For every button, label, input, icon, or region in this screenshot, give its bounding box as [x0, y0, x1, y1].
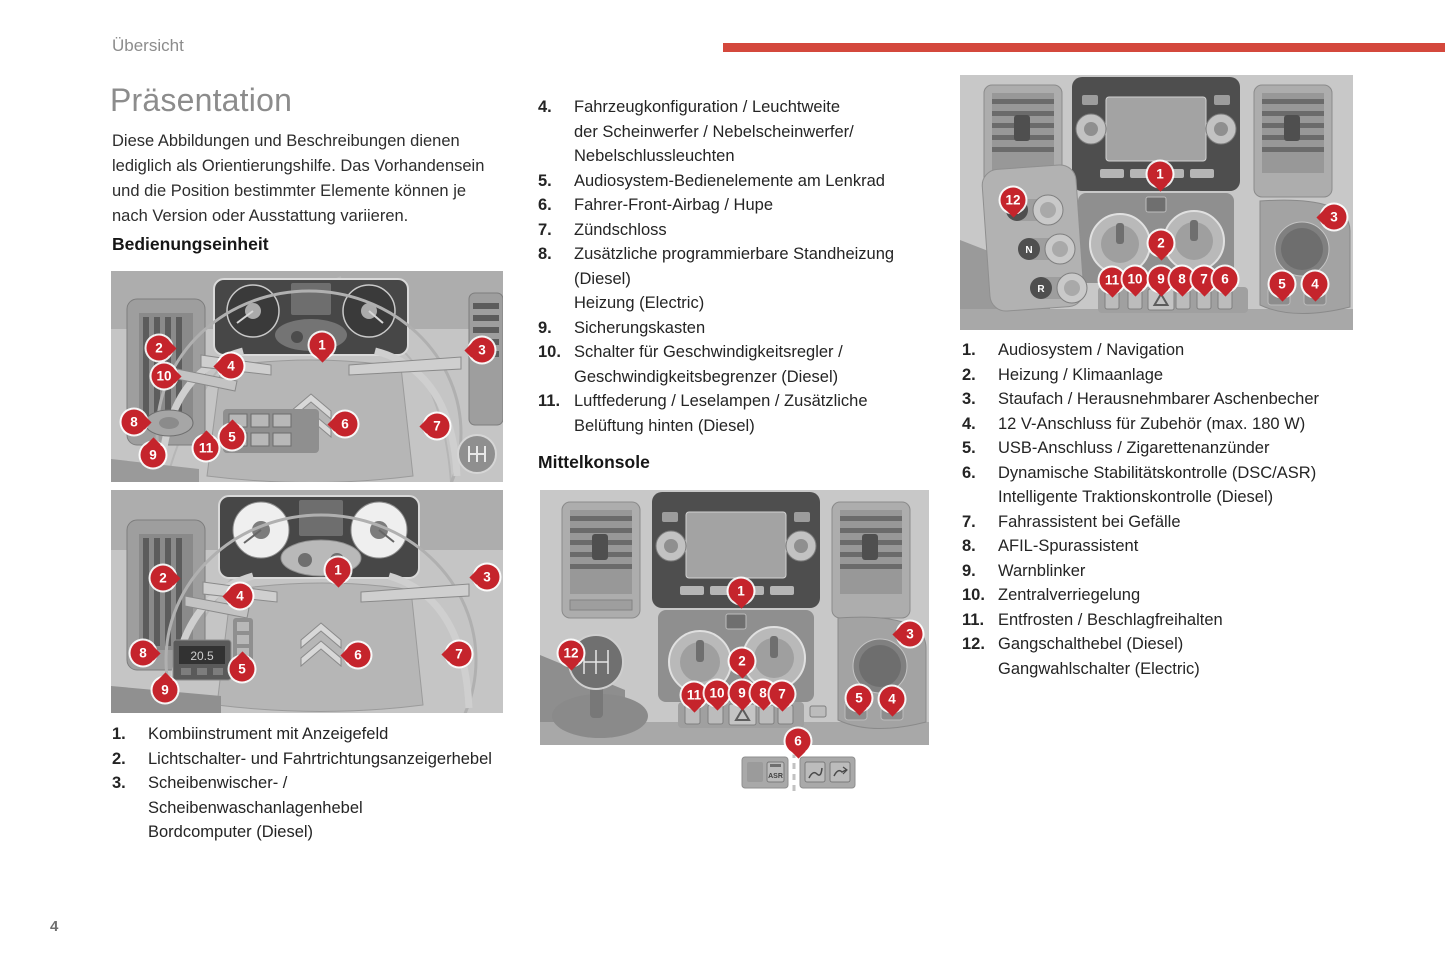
legend-list-center-console: 1.Audiosystem / Navigation2.Heizung / Kl… [962, 338, 1412, 681]
legend-list-control-unit-continued: 4.Fahrzeugkonfiguration / Leuchtweiteder… [538, 95, 950, 438]
reverse-button: R [1030, 273, 1087, 303]
list-item: 11.Luftfederung / Leselampen / Zusätzlic… [538, 389, 950, 438]
list-item-text: Scheibenwischer- /Scheibenwaschanlagenhe… [148, 771, 516, 845]
list-item: 12.Gangschalthebel (Diesel)Gangwahlschal… [962, 632, 1412, 681]
hill-descent-button-icon [805, 762, 825, 782]
callout-marker-12: 12 [1001, 188, 1026, 213]
callout-marker-8: 8 [122, 410, 147, 435]
list-item-text: Audiosystem-Bedienelemente am Lenkrad [574, 169, 950, 194]
list-item: 3.Scheibenwischer- /Scheibenwaschanlagen… [112, 771, 516, 845]
list-item-text: Luftfederung / Leselampen / ZusätzlicheB… [574, 389, 950, 438]
list-item-text: Zündschloss [574, 218, 950, 243]
list-item-text: Zusätzliche programmierbare Standheizung… [574, 242, 950, 316]
list-item-number: 9. [538, 316, 574, 341]
callout-marker-3: 3 [898, 622, 923, 647]
left-air-vent-icon [562, 502, 640, 618]
list-item-text: Zentralverriegelung [998, 583, 1412, 608]
accent-bar [723, 43, 1445, 52]
list-item-text: Lichtschalter- und Fahrtrichtungsanzeige… [148, 747, 516, 772]
section-heading-bedienungseinheit: Bedienungseinheit [112, 234, 269, 255]
callout-marker-4: 4 [228, 584, 253, 609]
list-item-number: 6. [538, 193, 574, 218]
list-item: 6.Dynamische Stabilitätskontrolle (DSC/A… [962, 461, 1412, 510]
list-item: 6.Fahrer-Front-Airbag / Hupe [538, 193, 950, 218]
list-item-text: Schalter für Geschwindigkeitsregler /Ges… [574, 340, 950, 389]
callout-marker-10: 10 [152, 364, 177, 389]
list-item: 5.Audiosystem-Bedienelemente am Lenkrad [538, 169, 950, 194]
list-item-number: 11. [962, 608, 998, 633]
instrument-cluster [219, 496, 419, 578]
list-item-text: Fahrzeugkonfiguration / Leuchtweiteder S… [574, 95, 950, 169]
callout-marker-4: 4 [880, 687, 905, 712]
list-item: 10.Schalter für Geschwindigkeitsregler /… [538, 340, 950, 389]
climate-temp-value: 20.5 [190, 649, 214, 663]
dnr-gear-selector: D N R [981, 164, 1087, 312]
callout-marker-9: 9 [141, 443, 166, 468]
control-unit-figure-2: 20.5 123485967 [111, 490, 503, 713]
list-item-number: 8. [962, 534, 998, 559]
list-item-text: USB-Anschluss / Zigarettenanzünder [998, 436, 1412, 461]
list-item: 3.Staufach / Herausnehmbarer Aschenbeche… [962, 387, 1412, 412]
callout-marker-11: 11 [682, 683, 707, 708]
page-number: 4 [50, 918, 58, 935]
list-item: 1.Audiosystem / Navigation [962, 338, 1412, 363]
list-item: 7.Zündschloss [538, 218, 950, 243]
list-item-text: Fahrassistent bei Gefälle [998, 510, 1412, 535]
list-item-text: Gangschalthebel (Diesel)Gangwahlschalter… [998, 632, 1412, 681]
callout-marker-10: 10 [705, 681, 730, 706]
callout-marker-2: 2 [1149, 231, 1174, 256]
list-item: 7.Fahrassistent bei Gefälle [962, 510, 1412, 535]
list-item: 9.Warnblinker [962, 559, 1412, 584]
callout-marker-10: 10 [1123, 267, 1148, 292]
list-item-number: 3. [112, 771, 148, 796]
list-item: 4.12 V-Anschluss für Zubehör (max. 180 W… [962, 412, 1412, 437]
control-unit-figure-1: 1234108911567 [111, 271, 503, 482]
callout-marker-3: 3 [475, 565, 500, 590]
callout-marker-3: 3 [470, 338, 495, 363]
callout-marker-12: 12 [559, 641, 584, 666]
list-item-number: 4. [538, 95, 574, 120]
list-item-number: 12. [962, 632, 998, 657]
callout-marker-11: 11 [1100, 268, 1125, 293]
callout-marker-7: 7 [425, 414, 450, 439]
callout-marker-4: 4 [1303, 272, 1328, 297]
console-illustration: ASR [540, 490, 929, 795]
callout-marker-4: 4 [219, 354, 244, 379]
list-item-number: 7. [538, 218, 574, 243]
callout-marker-1: 1 [729, 579, 754, 604]
callout-marker-6: 6 [333, 412, 358, 437]
callout-marker-5: 5 [230, 657, 255, 682]
callout-marker-2: 2 [730, 649, 755, 674]
list-item-number: 2. [962, 363, 998, 388]
callout-marker-6: 6 [346, 643, 371, 668]
list-item-number: 6. [962, 461, 998, 486]
center-console-electric-figure: D N R 12312 [960, 75, 1353, 330]
list-item-number: 2. [112, 747, 148, 772]
callout-marker-11: 11 [194, 436, 219, 461]
list-item: 1.Kombiinstrument mit Anzeigefeld [112, 722, 516, 747]
callout-marker-5: 5 [847, 686, 872, 711]
list-item: 5.USB-Anschluss / Zigarettenanzünder [962, 436, 1412, 461]
list-item: 2.Lichtschalter- und Fahrtrichtungsanzei… [112, 747, 516, 772]
list-item-text: Warnblinker [998, 559, 1412, 584]
list-item: 2.Heizung / Klimaanlage [962, 363, 1412, 388]
list-item-number: 11. [538, 389, 574, 414]
list-item-number: 4. [962, 412, 998, 437]
callout-marker-5: 5 [1270, 272, 1295, 297]
svg-text:R: R [1037, 284, 1045, 295]
list-item-number: 3. [962, 387, 998, 412]
list-item: 8.AFIL-Spurassistent [962, 534, 1412, 559]
list-item-number: 1. [962, 338, 998, 363]
right-air-vent-icon [1254, 85, 1332, 197]
chapter-header: Übersicht [112, 36, 184, 56]
neutral-button: N [1018, 234, 1075, 264]
list-item-number: 10. [962, 583, 998, 608]
list-item-number: 10. [538, 340, 574, 365]
list-item-text: Fahrer-Front-Airbag / Hupe [574, 193, 950, 218]
manual-page: Übersicht Präsentation Diese Abbildungen… [0, 0, 1445, 963]
legend-list-control-unit: 1.Kombiinstrument mit Anzeigefeld2.Licht… [112, 722, 516, 845]
list-item-text: Staufach / Herausnehmbarer Aschenbecher [998, 387, 1412, 412]
callout-marker-8: 8 [131, 641, 156, 666]
traction-button-icon [830, 762, 850, 782]
callout-marker-1: 1 [1148, 162, 1173, 187]
callout-marker-9: 9 [153, 678, 178, 703]
list-item-text: 12 V-Anschluss für Zubehör (max. 180 W) [998, 412, 1412, 437]
list-item-text: Sicherungskasten [574, 316, 950, 341]
callout-marker-2: 2 [147, 336, 172, 361]
list-item: 10.Zentralverriegelung [962, 583, 1412, 608]
list-item-number: 1. [112, 722, 148, 747]
list-item-number: 5. [962, 436, 998, 461]
list-item-text: Kombiinstrument mit Anzeigefeld [148, 722, 516, 747]
list-item-number: 8. [538, 242, 574, 267]
list-item: 11.Entfrosten / Beschlagfreihalten [962, 608, 1412, 633]
list-item: 9.Sicherungskasten [538, 316, 950, 341]
callout-marker-6: 6 [786, 729, 811, 754]
center-console-figure: ASR 123121110987546 [540, 490, 929, 795]
list-item: 8.Zusätzliche programmierbare Standheizu… [538, 242, 950, 316]
callout-marker-5: 5 [220, 425, 245, 450]
list-item-number: 5. [538, 169, 574, 194]
list-item-number: 7. [962, 510, 998, 535]
climate-display: 20.5 [173, 640, 231, 680]
list-item-text: AFIL-Spurassistent [998, 534, 1412, 559]
callout-marker-1: 1 [326, 558, 351, 583]
intro-paragraph: Diese Abbildungen und Beschreibungen die… [112, 129, 504, 229]
callout-marker-1: 1 [310, 333, 335, 358]
list-item-text: Dynamische Stabilitätskontrolle (DSC/ASR… [998, 461, 1412, 510]
list-item-text: Heizung / Klimaanlage [998, 363, 1412, 388]
callout-marker-7: 7 [770, 682, 795, 707]
callout-marker-7: 7 [447, 642, 472, 667]
callout-marker-3: 3 [1322, 205, 1347, 230]
svg-text:N: N [1025, 245, 1032, 256]
list-item: 4.Fahrzeugkonfiguration / Leuchtweiteder… [538, 95, 950, 169]
gear-knob-icon [458, 435, 496, 473]
callout-marker-6: 6 [1213, 267, 1238, 292]
list-item-text: Audiosystem / Navigation [998, 338, 1412, 363]
section-heading-mittelkonsole: Mittelkonsole [538, 452, 650, 473]
right-air-vent-icon [832, 502, 910, 618]
list-item-number: 9. [962, 559, 998, 584]
page-title: Präsentation [110, 82, 292, 119]
asr-button: ASR [767, 762, 784, 782]
callout-marker-2: 2 [151, 566, 176, 591]
list-item-text: Entfrosten / Beschlagfreihalten [998, 608, 1412, 633]
asr-label: ASR [768, 773, 783, 780]
headlight-dial-icon [145, 410, 193, 436]
